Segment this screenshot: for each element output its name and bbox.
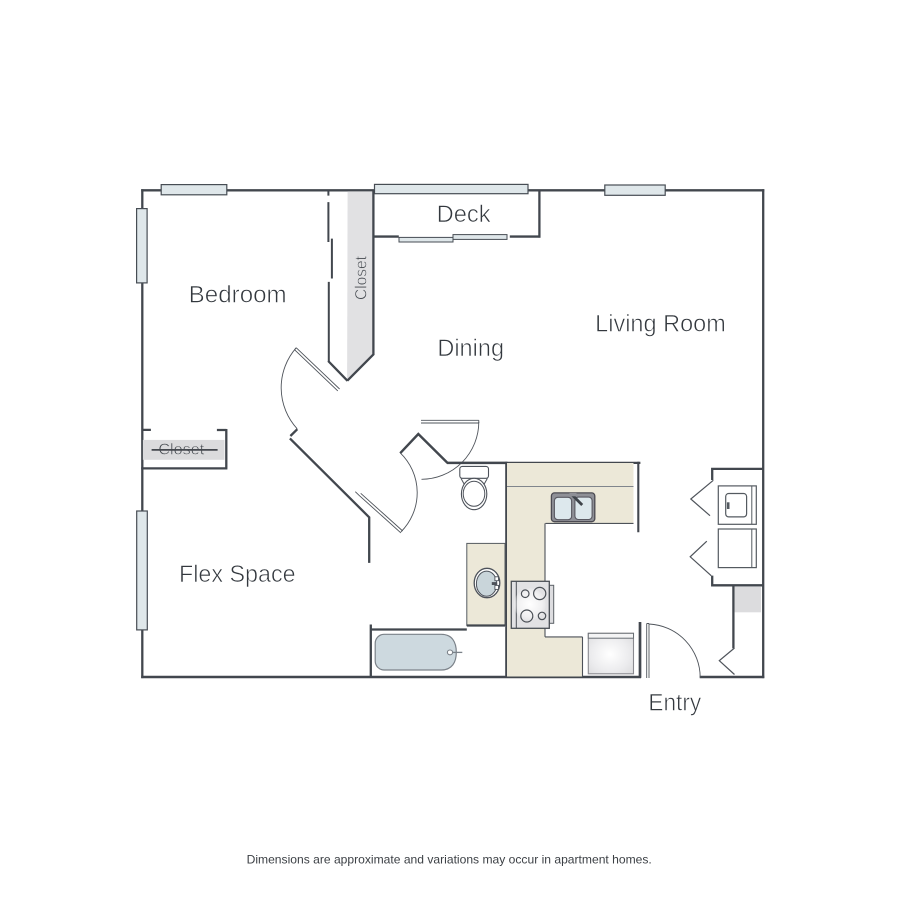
svg-text:Closet: Closet bbox=[352, 256, 371, 300]
svg-text:Bedroom: Bedroom bbox=[189, 281, 287, 308]
svg-text:Entry: Entry bbox=[648, 690, 701, 717]
svg-text:Flex Space: Flex Space bbox=[179, 561, 296, 588]
svg-text:Dimensions are approximate and: Dimensions are approximate and variation… bbox=[247, 853, 652, 867]
svg-text:Living Room: Living Room bbox=[595, 311, 726, 338]
svg-text:Deck: Deck bbox=[437, 201, 492, 228]
svg-text:Dining: Dining bbox=[437, 335, 504, 362]
